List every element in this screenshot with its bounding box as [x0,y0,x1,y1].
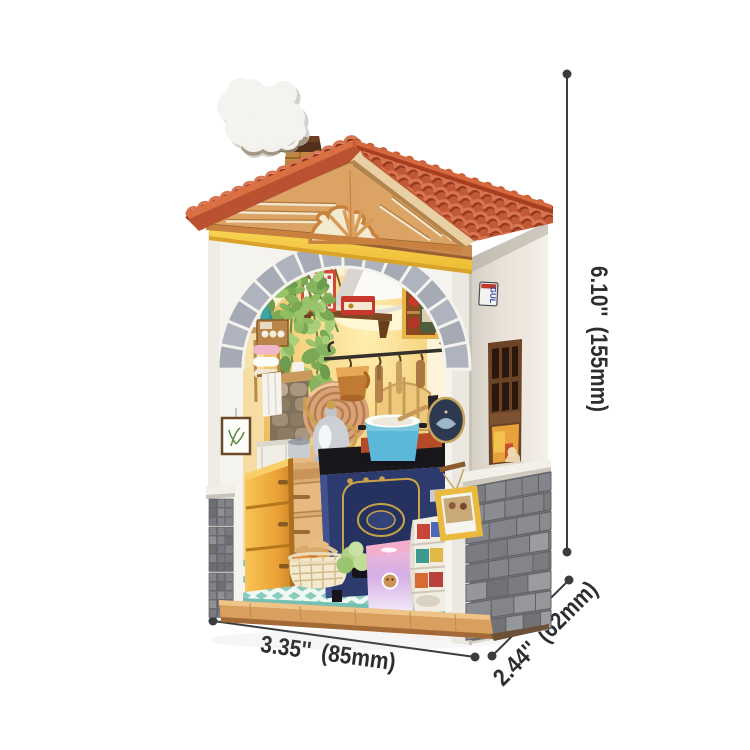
svg-text:GUL: GUL [488,287,498,304]
svg-text:6.10'' (155mm): 6.10'' (155mm) [585,266,612,412]
